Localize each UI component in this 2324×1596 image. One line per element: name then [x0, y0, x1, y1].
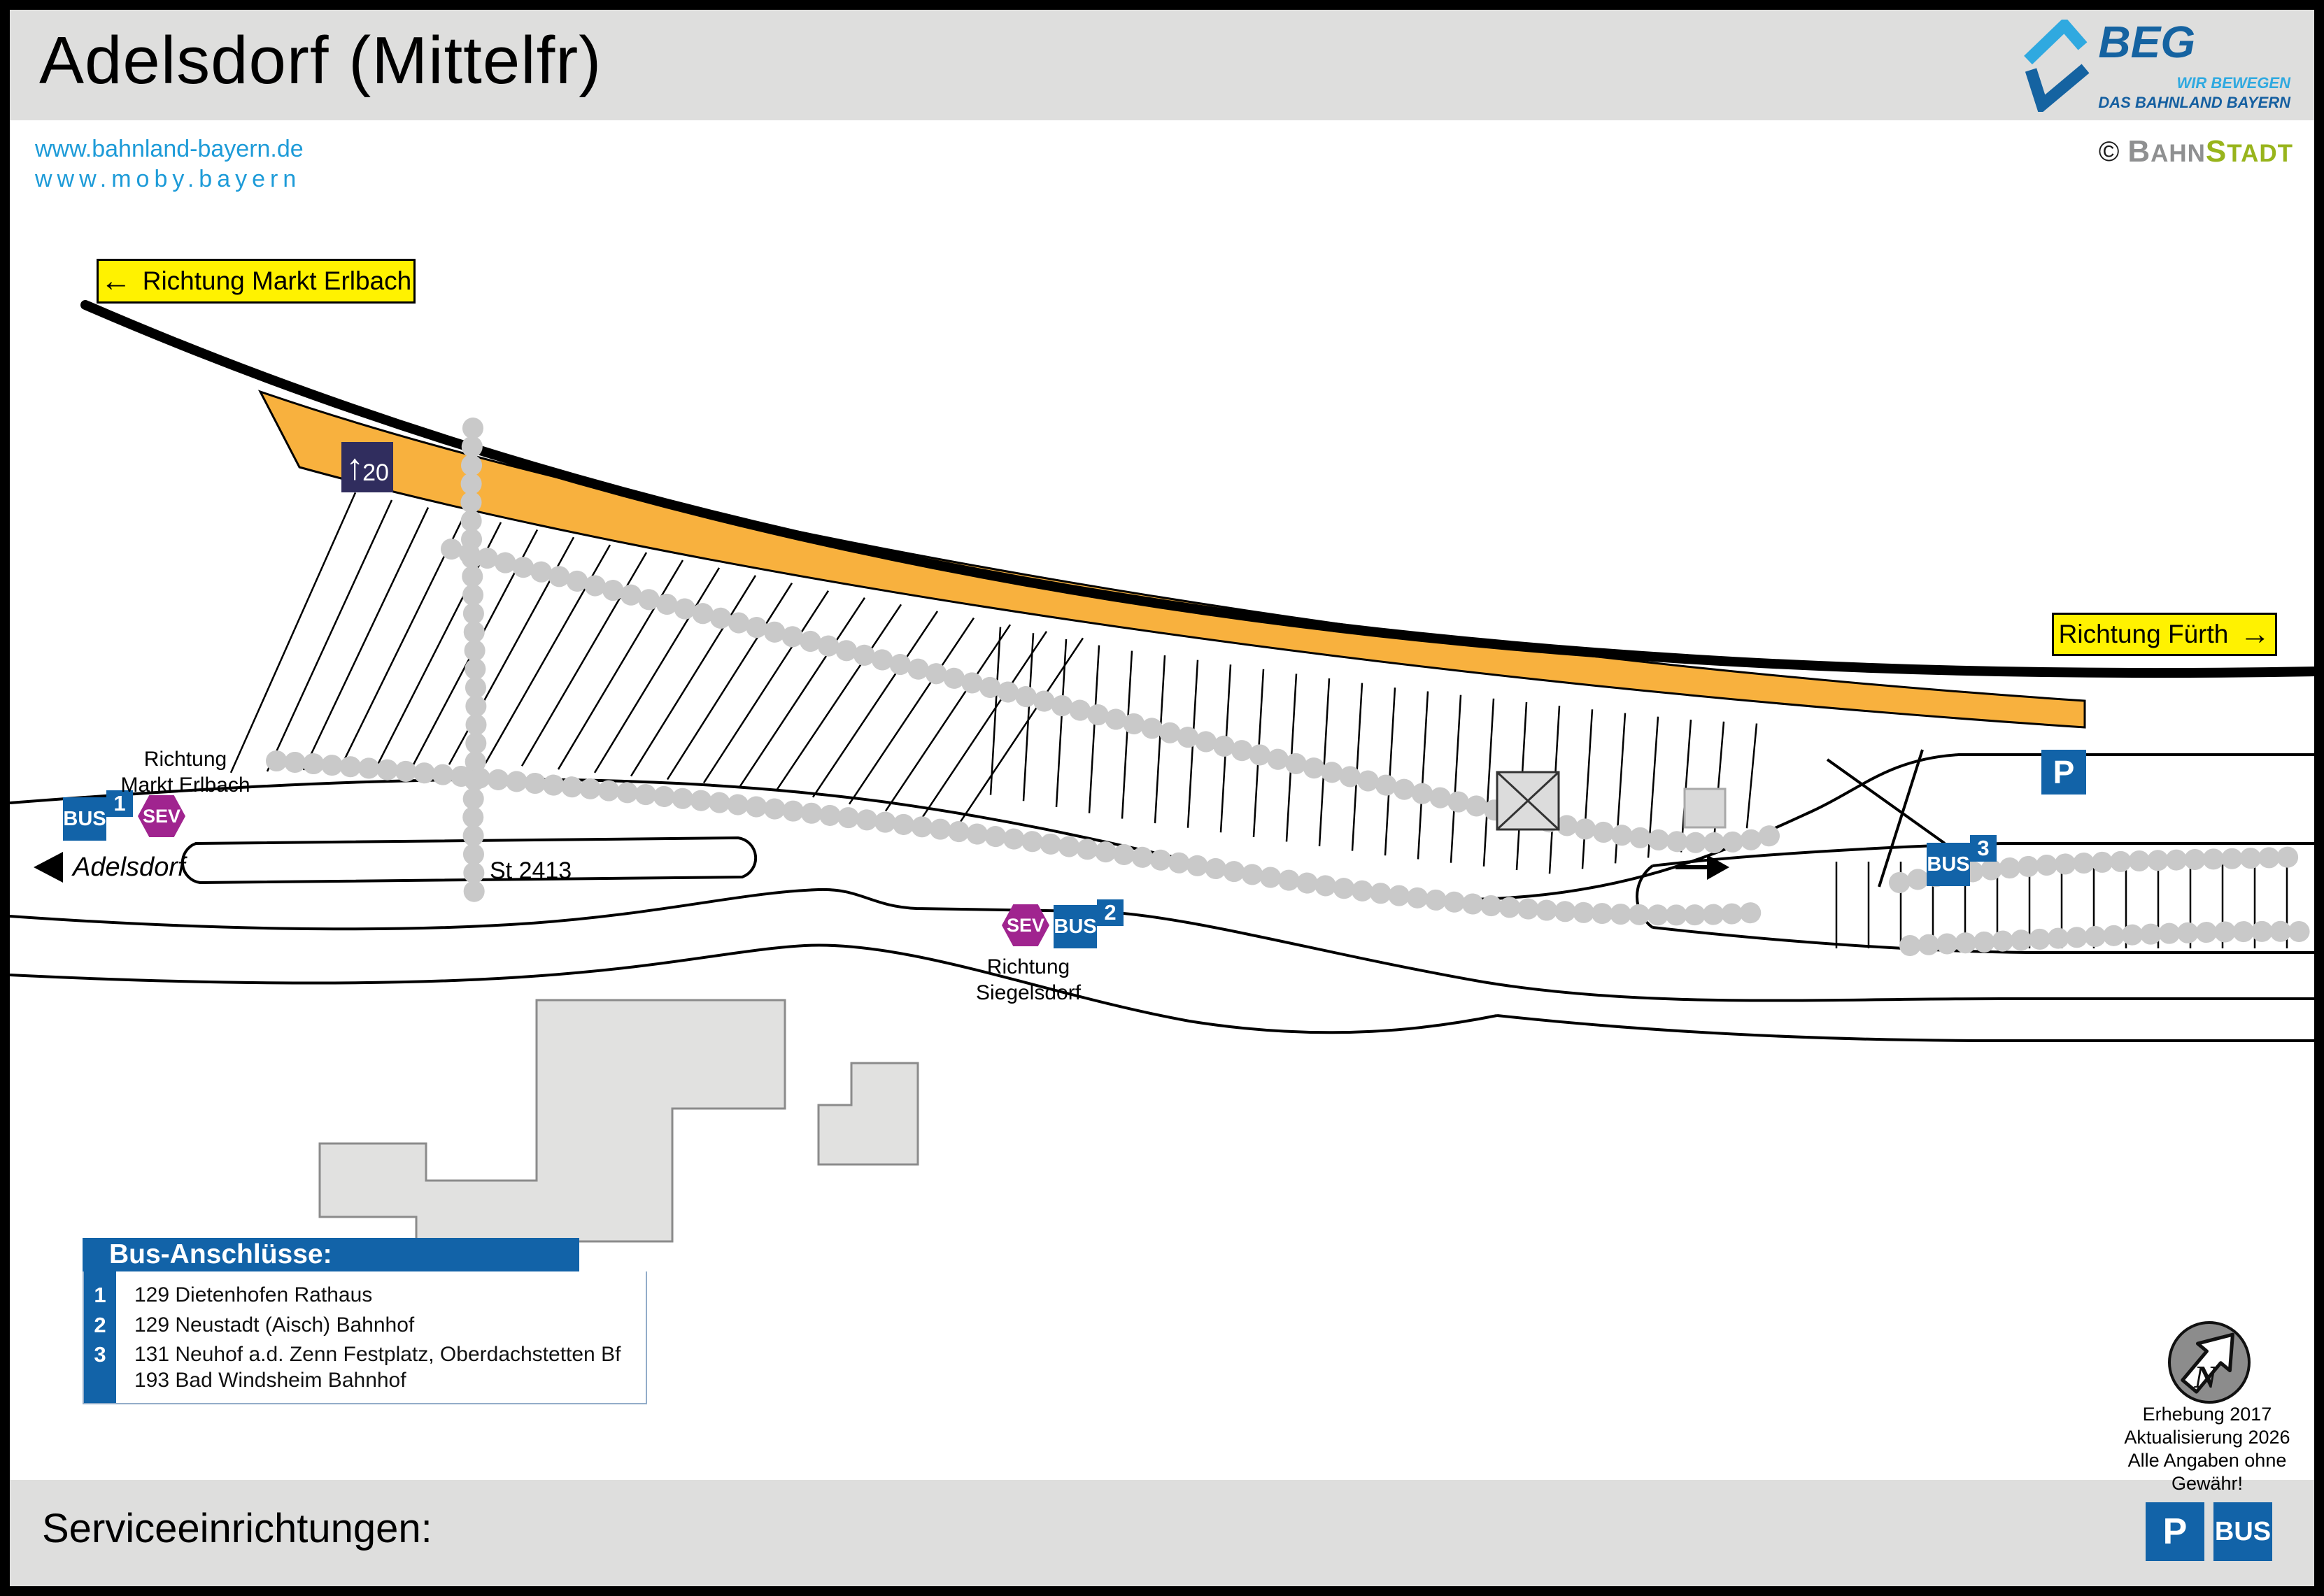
stop-3-badge: 3	[1970, 835, 1997, 862]
note-line: Alle Angaben ohne Gewähr!	[2106, 1449, 2309, 1495]
bus-stop-2: SEV BUS 2	[1002, 899, 1124, 948]
hatch-line	[1056, 639, 1066, 807]
legend-row: 2 129 Neustadt (Aisch) Bahnhof	[84, 1313, 646, 1339]
hatch-line	[1418, 692, 1428, 860]
bahnstadt-stadt: STADT	[2206, 134, 2293, 169]
building-small	[819, 1063, 918, 1164]
town-arrow-icon	[34, 852, 63, 883]
roads	[10, 750, 2314, 1041]
beg-logo: BEG WIR BEWEGEN DAS BAHNLAND BAYERN	[2021, 20, 2290, 112]
hatch-line	[1385, 687, 1395, 855]
direction-sign-markt-erlbach: ← Richtung Markt Erlbach	[97, 259, 416, 304]
hatch-line	[1451, 695, 1461, 863]
stop-2-direction-label: Richtung Siegelsdorf	[937, 955, 1119, 1006]
legend-row-text: 131 Neuhof a.d. Zenn Festplatz, Oberdach…	[116, 1342, 621, 1393]
service-icons: P BUS	[2146, 1502, 2272, 1561]
bus-icon: BUS	[2213, 1502, 2272, 1561]
survey-notes: Erhebung 2017 Aktualisierung 2026 Alle A…	[2106, 1403, 2309, 1495]
footer-bar: Serviceeinrichtungen: P BUS	[10, 1480, 2314, 1586]
parking-icon: P	[2146, 1502, 2204, 1561]
note-line: Aktualisierung 2026	[2106, 1426, 2309, 1449]
link-moby-bayern[interactable]: www.moby.bayern	[35, 164, 304, 194]
town-pointer-adelsdorf: Adelsdorf	[34, 852, 185, 883]
legend-row: 3 131 Neuhof a.d. Zenn Festplatz, Oberda…	[84, 1342, 646, 1393]
page-title: Adelsdorf (Mittelfr)	[39, 22, 602, 99]
legend-row-number: 3	[84, 1342, 116, 1367]
sev-icon: SEV	[1002, 904, 1049, 946]
beg-diamond-icon	[2021, 20, 2091, 112]
hatch-line	[1089, 646, 1099, 813]
hatch-line	[267, 500, 392, 771]
bus-stop-3: BUS 3	[1927, 835, 1997, 886]
compass-n-letter: N	[2193, 1359, 2218, 1395]
stop-2-badge: 2	[1097, 899, 1124, 926]
legend-row-number: 2	[84, 1313, 116, 1338]
website-links: www.bahnland-bayern.de www.moby.bayern	[35, 134, 304, 194]
link-bahnland-bayern[interactable]: www.bahnland-bayern.de	[35, 134, 304, 164]
bus-icon: BUS	[63, 797, 106, 841]
parking-icon: P	[2041, 750, 2086, 795]
hatch-line	[1122, 651, 1132, 819]
beg-slogan-1: WIR BEWEGEN	[2176, 74, 2290, 92]
bahnstadt-credit: © BAHNSTADT	[2099, 134, 2293, 169]
hatch-line	[231, 492, 355, 773]
direction-sign-fuerth: Richtung Fürth →	[2052, 613, 2277, 656]
shelter	[1497, 772, 1559, 829]
utility-box	[1685, 789, 1725, 827]
hatch-line	[1681, 720, 1691, 853]
stop-1-direction-label: Richtung Markt Erlbach	[91, 747, 280, 798]
hatch-line	[304, 508, 428, 770]
beg-slogan-2: DAS BAHNLAND BAYERN	[2098, 94, 2290, 112]
hatch-line	[1582, 709, 1592, 869]
legend-row-text: 129 Dietenhofen Rathaus	[116, 1283, 372, 1309]
legend-title: Bus-Anschlüsse:	[83, 1238, 579, 1271]
hatch-line	[1747, 724, 1757, 829]
hedge-vertical	[471, 428, 476, 908]
direction-sign-left-label: Richtung Markt Erlbach	[143, 266, 412, 296]
town-label: Adelsdorf	[73, 853, 185, 883]
legend-row-text: 129 Neustadt (Aisch) Bahnhof	[116, 1313, 414, 1339]
platform-sign-number: 20	[362, 459, 389, 487]
road-label-st2413: St 2413	[490, 857, 572, 885]
copyright-icon: ©	[2099, 136, 2119, 168]
buildings	[320, 1000, 918, 1241]
platform-sign-20: ↑ 20	[341, 442, 393, 492]
road-lowest-edge	[1497, 1016, 2314, 1041]
building-large	[320, 1000, 785, 1241]
note-line: Erhebung 2017	[2106, 1403, 2309, 1426]
sev-icon: SEV	[138, 795, 185, 837]
bahnstadt-bahn: BAHN	[2127, 134, 2206, 169]
bus-icon: BUS	[1927, 843, 1970, 886]
legend-body: 1 129 Dietenhofen Rathaus 2 129 Neustadt…	[83, 1271, 647, 1404]
hatch-line	[1484, 699, 1494, 867]
beg-name: BEG	[2098, 20, 2195, 64]
header-bar: Adelsdorf (Mittelfr) BEG WIR BEWEGEN DAS…	[10, 10, 2314, 120]
bus-connections-legend: Bus-Anschlüsse: 1 129 Dietenhofen Rathau…	[83, 1238, 647, 1404]
bus-icon: BUS	[1054, 905, 1097, 948]
service-facilities-label: Serviceeinrichtungen:	[42, 1505, 432, 1552]
direction-sign-right-label: Richtung Fürth	[2059, 620, 2229, 649]
hedge-east-lower	[1910, 932, 2302, 946]
north-compass-icon: N	[2169, 1321, 2249, 1402]
legend-row-number: 1	[84, 1283, 116, 1308]
beg-logo-text: BEG WIR BEWEGEN DAS BAHNLAND BAYERN	[2098, 20, 2290, 112]
legend-row: 1 129 Dietenhofen Rathaus	[84, 1283, 646, 1309]
